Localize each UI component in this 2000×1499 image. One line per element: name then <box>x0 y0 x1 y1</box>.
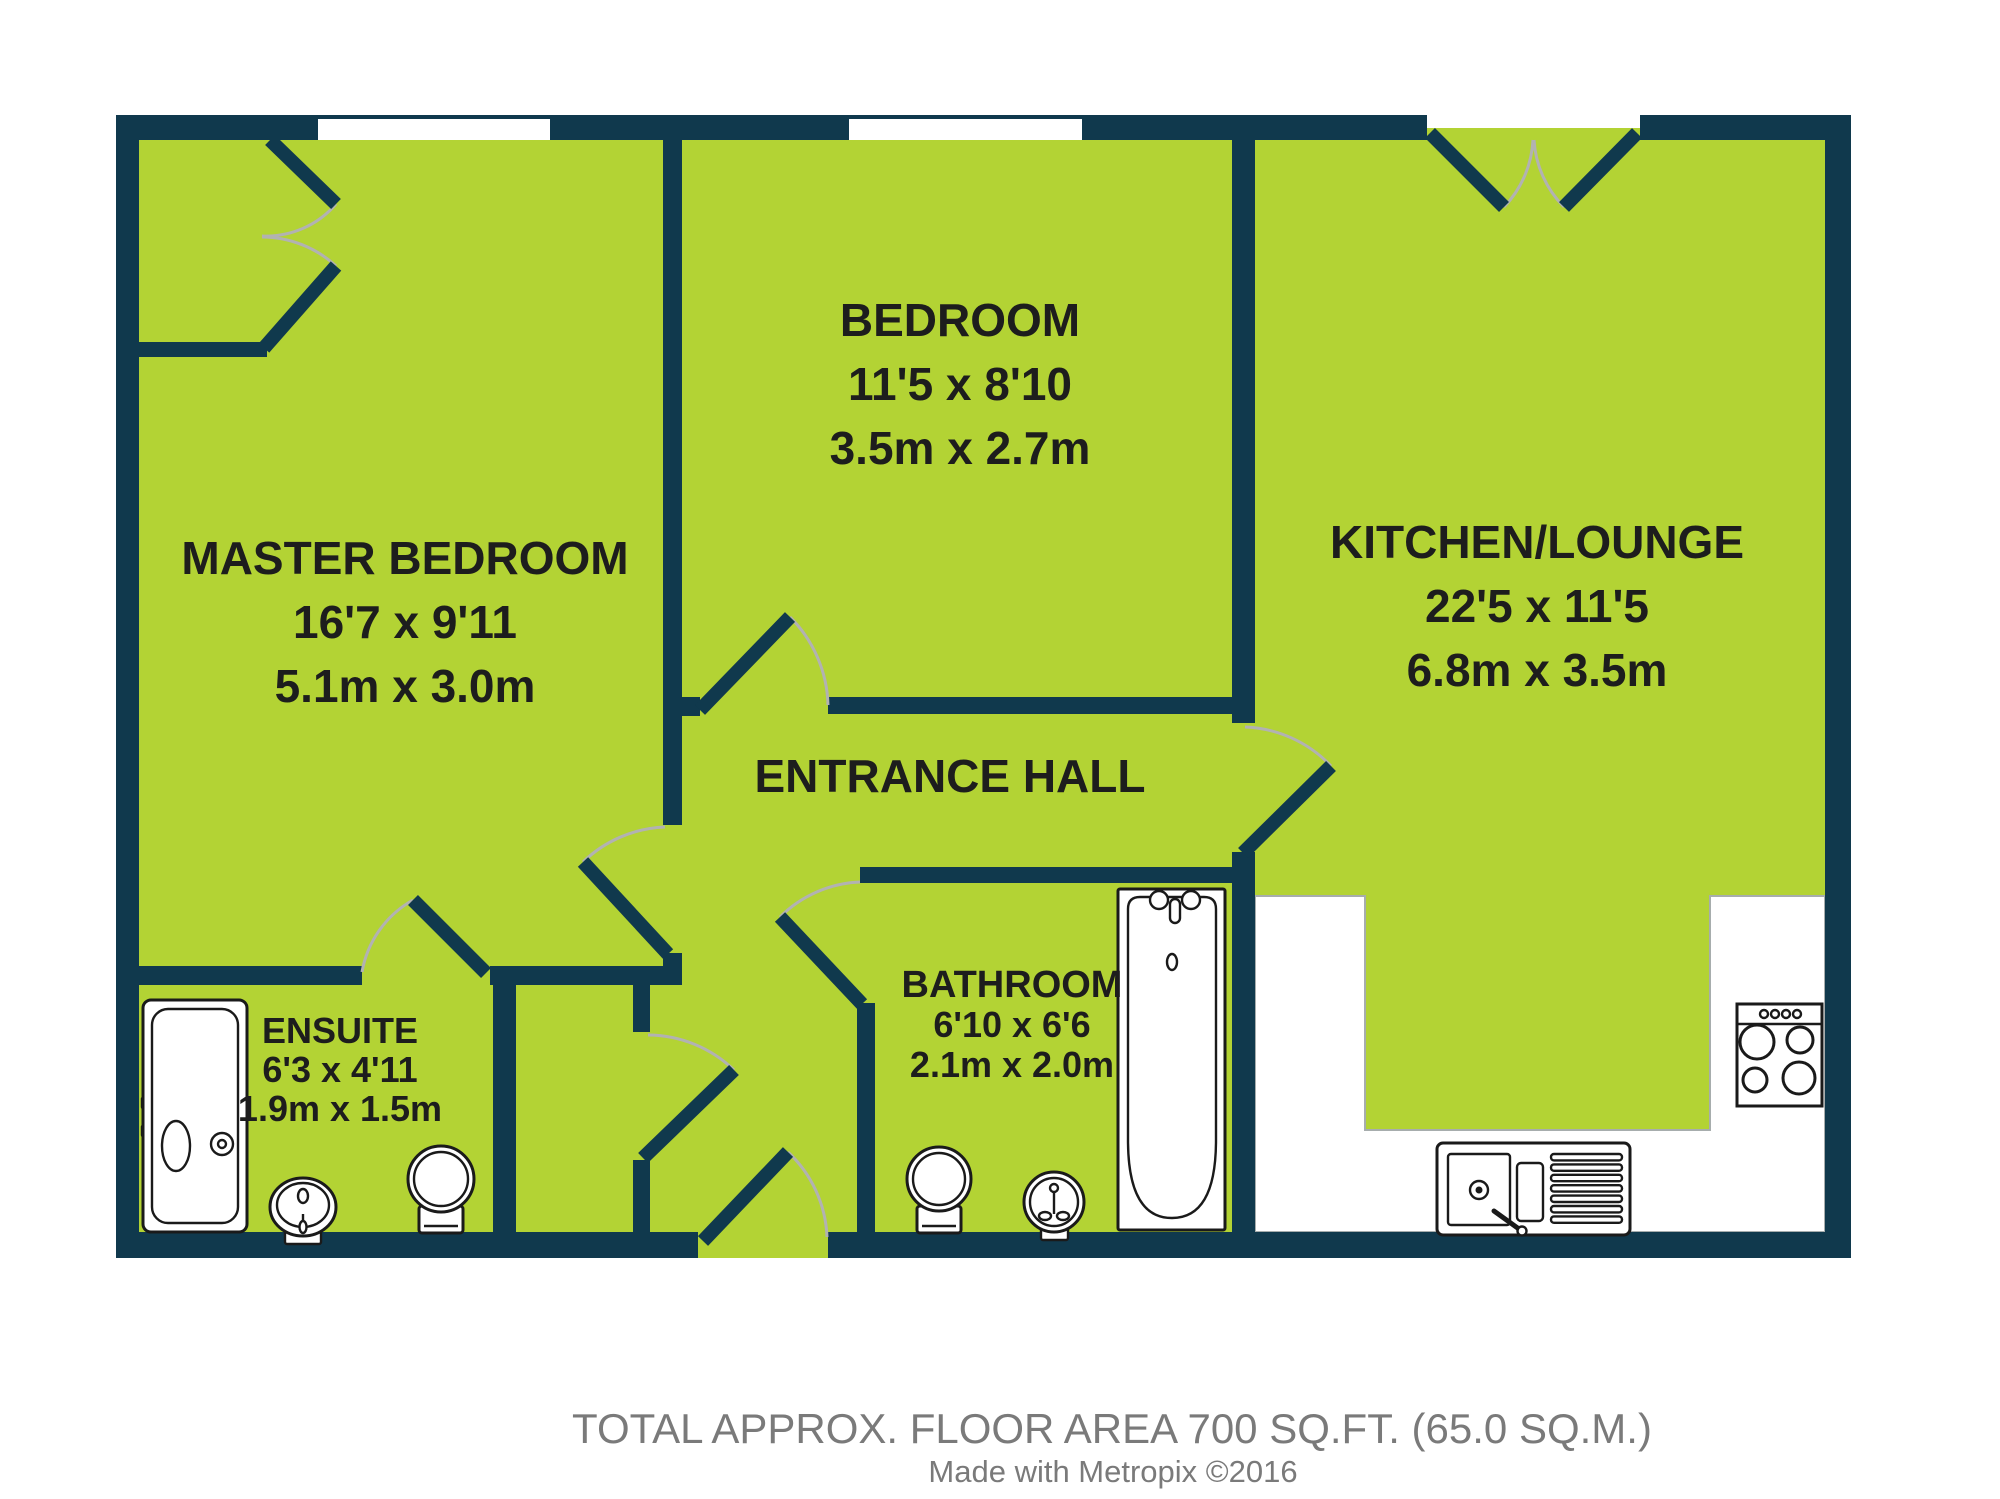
kitchen-sink-icon <box>1437 1143 1630 1236</box>
room-size-imperial: 6'10 x 6'6 <box>933 1004 1090 1045</box>
wall <box>860 867 1232 883</box>
wall <box>1232 852 1255 1232</box>
wall <box>1825 115 1851 1258</box>
room-size-metric: 3.5m x 2.7m <box>830 422 1091 474</box>
wall <box>828 1232 1851 1258</box>
room-size-metric: 6.8m x 3.5m <box>1407 644 1668 696</box>
floorplan-drawing: MASTER BEDROOM 16'7 x 9'11 5.1m x 3.0m B… <box>0 0 2000 1499</box>
patio-door-threshold <box>1427 106 1640 128</box>
room-name: MASTER BEDROOM <box>181 532 628 584</box>
total-floor-area-text: TOTAL APPROX. FLOOR AREA 700 SQ.FT. (65.… <box>572 1405 1652 1452</box>
room-name: KITCHEN/LOUNGE <box>1330 516 1744 568</box>
room-size-metric: 1.9m x 1.5m <box>238 1088 442 1129</box>
hob-icon <box>1737 1004 1822 1106</box>
wall <box>1232 140 1255 723</box>
wall <box>116 115 1427 140</box>
floorplan-page: MASTER BEDROOM 16'7 x 9'11 5.1m x 3.0m B… <box>0 0 2000 1499</box>
room-size-imperial: 6'3 x 4'11 <box>262 1049 417 1090</box>
wall <box>116 115 139 1258</box>
room-label-entrance-hall: ENTRANCE HALL <box>755 750 1146 802</box>
room-size-metric: 2.1m x 2.0m <box>910 1044 1114 1085</box>
room-label-bathroom: BATHROOM 6'10 x 6'6 2.1m x 2.0m <box>902 964 1123 1085</box>
wall <box>139 966 362 985</box>
room-size-imperial: 16'7 x 9'11 <box>293 596 517 648</box>
wall <box>828 697 1232 714</box>
toilet-icon <box>408 1146 474 1233</box>
footer: TOTAL APPROX. FLOOR AREA 700 SQ.FT. (65.… <box>572 1405 1652 1489</box>
window-icon <box>318 119 550 140</box>
wall <box>493 985 516 1232</box>
room-size-imperial: 22'5 x 11'5 <box>1425 580 1649 632</box>
wall <box>1640 115 1851 140</box>
room-name: ENTRANCE HALL <box>755 750 1146 802</box>
wall <box>663 140 682 825</box>
toilet-icon <box>907 1147 971 1233</box>
wall <box>139 342 267 357</box>
shower-bath-icon <box>142 1000 247 1232</box>
wall <box>633 1160 650 1232</box>
wall <box>490 966 682 985</box>
room-name: ENSUITE <box>262 1010 418 1051</box>
room-size-metric: 5.1m x 3.0m <box>275 660 536 712</box>
room-name: BATHROOM <box>902 964 1123 1006</box>
room-size-imperial: 11'5 x 8'10 <box>848 358 1072 410</box>
room-name: BEDROOM <box>840 294 1080 346</box>
wall <box>116 1232 698 1258</box>
window-icon <box>849 119 1082 140</box>
wall <box>633 966 650 1032</box>
room-label-ensuite: ENSUITE 6'3 x 4'11 1.9m x 1.5m <box>238 1010 442 1129</box>
bathtub-icon <box>1118 889 1225 1230</box>
wall <box>857 1003 875 1232</box>
room-label-bedroom: BEDROOM 11'5 x 8'10 3.5m x 2.7m <box>830 294 1091 474</box>
credit-text: Made with Metropix ©2016 <box>928 1454 1297 1489</box>
